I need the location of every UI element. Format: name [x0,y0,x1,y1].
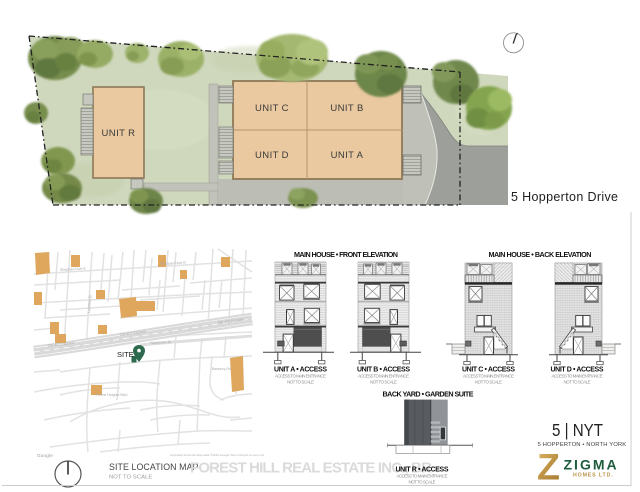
svg-text:MAIN HOUSE • FRONT ELEVATION: MAIN HOUSE • FRONT ELEVATION [294,250,398,259]
svg-text:ACCESS TO MAIN ENTRANCE: ACCESS TO MAIN ENTRANCE [397,474,448,479]
svg-text:UNIT B • ACCESS: UNIT B • ACCESS [357,367,410,374]
svg-text:BACK YARD • GARDEN SUITE: BACK YARD • GARDEN SUITE [383,390,474,399]
svg-text:UNIT A: UNIT A [331,150,364,161]
svg-text:UNIT C • ACCESS: UNIT C • ACCESS [462,367,515,374]
svg-text:ACCESS TO MAIN ENTRANCE: ACCESS TO MAIN ENTRANCE [358,374,409,379]
svg-text:5 Hopperton Drive: 5 Hopperton Drive [511,190,618,204]
svg-text:UNIT R: UNIT R [102,128,136,139]
svg-text:ZIGMA: ZIGMA [564,457,619,473]
svg-text:Google: Google [37,453,53,458]
svg-text:SITE: SITE [117,350,134,359]
svg-text:Z: Z [537,446,560,488]
svg-text:UNIT D • ACCESS: UNIT D • ACCESS [551,367,604,374]
svg-text:NOT TO SCALE: NOT TO SCALE [370,380,397,385]
svg-text:ACCESS TO MAIN ENTRANCE: ACCESS TO MAIN ENTRANCE [552,374,603,379]
svg-text:NOT TO SCALE: NOT TO SCALE [409,480,436,485]
svg-text:NOT TO SCALE: NOT TO SCALE [287,380,314,385]
svg-text:UNIT B: UNIT B [330,103,363,114]
svg-text:HOMES LTD.: HOMES LTD. [573,473,614,479]
svg-text:NOT TO SCALE: NOT TO SCALE [109,475,152,481]
svg-text:NOT TO SCALE: NOT TO SCALE [564,380,591,385]
svg-text:ACCESS TO MAIN ENTRANCE: ACCESS TO MAIN ENTRANCE [463,374,514,379]
svg-text:Forest Heights Blvd: Forest Heights Blvd [96,393,127,397]
svg-text:UNIT D: UNIT D [255,150,289,161]
svg-text:Banbury Rd: Banbury Rd [212,367,231,371]
svg-text:ACCESS TO MAIN ENTRANCE: ACCESS TO MAIN ENTRANCE [275,374,326,379]
svg-text:5 | NYT: 5 | NYT [552,420,603,440]
svg-text:UNIT C: UNIT C [255,103,289,114]
svg-text:MAIN HOUSE • BACK ELEVATION: MAIN HOUSE • BACK ELEVATION [489,250,592,259]
svg-text:UNIT R • ACCESS: UNIT R • ACCESS [396,467,449,474]
svg-text:Keyboard shortcuts Map data: Keyboard shortcuts Map data ©2023 Google… [170,453,265,457]
svg-text:SITE LOCATION MAP: SITE LOCATION MAP [109,462,199,472]
svg-text:UNIT A • ACCESS: UNIT A • ACCESS [274,367,327,374]
svg-text:NOT TO SCALE: NOT TO SCALE [475,380,502,385]
